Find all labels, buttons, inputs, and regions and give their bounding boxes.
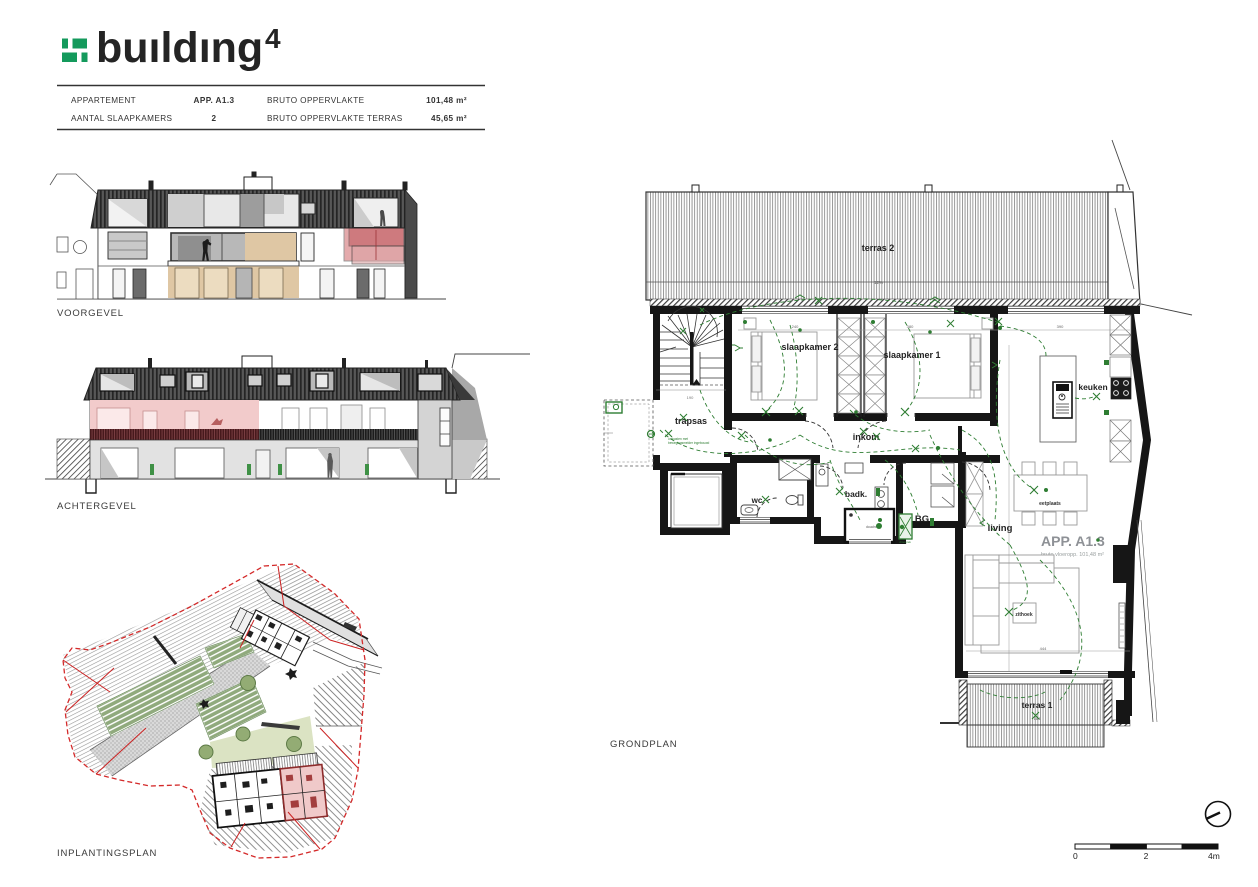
- svg-text:douche: douche: [866, 525, 877, 529]
- svg-text:240: 240: [792, 324, 799, 329]
- svg-text:eetplaats: eetplaats: [1039, 501, 1061, 507]
- svg-text:BRUTO OPPERVLAKTE: BRUTO OPPERVLAKTE: [267, 96, 365, 105]
- svg-text:0: 0: [1073, 851, 1078, 861]
- svg-text:390: 390: [1057, 324, 1064, 329]
- svg-text:zithoek: zithoek: [1015, 612, 1032, 618]
- svg-text:APP. A1.3: APP. A1.3: [1041, 533, 1105, 549]
- svg-text:AANTAL SLAAPKAMERS: AANTAL SLAAPKAMERS: [71, 114, 173, 123]
- svg-text:ACHTERGEVEL: ACHTERGEVEL: [57, 501, 137, 512]
- svg-text:444: 444: [1040, 646, 1047, 651]
- svg-text:GRONDPLAN: GRONDPLAN: [610, 739, 677, 750]
- svg-text:slaapkamer 1: slaapkamer 1: [883, 350, 940, 360]
- svg-text:APP. A1.3: APP. A1.3: [194, 96, 235, 105]
- svg-text:2: 2: [212, 114, 217, 123]
- svg-text:buıldıng: buıldıng: [96, 24, 263, 72]
- svg-text:slaapkamer 2: slaapkamer 2: [781, 342, 838, 352]
- svg-text:4: 4: [265, 23, 281, 54]
- svg-text:INPLANTINGSPLAN: INPLANTINGSPLAN: [57, 848, 157, 859]
- svg-text:terras 1: terras 1: [1022, 700, 1053, 710]
- svg-text:190: 190: [687, 395, 694, 400]
- svg-text:trapsas: trapsas: [675, 416, 707, 426]
- svg-text:BRUTO OPPERVLAKTE TERRAS: BRUTO OPPERVLAKTE TERRAS: [267, 114, 403, 123]
- svg-text:2: 2: [1144, 851, 1149, 861]
- svg-text:380: 380: [907, 324, 914, 329]
- svg-text:VOORGEVEL: VOORGEVEL: [57, 308, 124, 319]
- svg-text:45,65 m²: 45,65 m²: [431, 114, 467, 123]
- svg-text:4m: 4m: [1208, 851, 1220, 861]
- svg-text:droogrek: droogrek: [899, 540, 911, 544]
- svg-text:101,48 m²: 101,48 m²: [426, 96, 467, 105]
- svg-text:keuken: keuken: [1078, 382, 1107, 392]
- svg-text:12%: 12%: [874, 280, 883, 285]
- svg-text:badk.: badk.: [845, 489, 867, 499]
- svg-text:terras 2: terras 2: [862, 243, 895, 253]
- svg-text:bewegingsmelder ingebouwd: bewegingsmelder ingebouwd: [668, 441, 710, 445]
- svg-text:APPARTEMENT: APPARTEMENT: [71, 96, 136, 105]
- svg-text:BG: BG: [915, 514, 929, 525]
- svg-text:wc: wc: [751, 496, 763, 505]
